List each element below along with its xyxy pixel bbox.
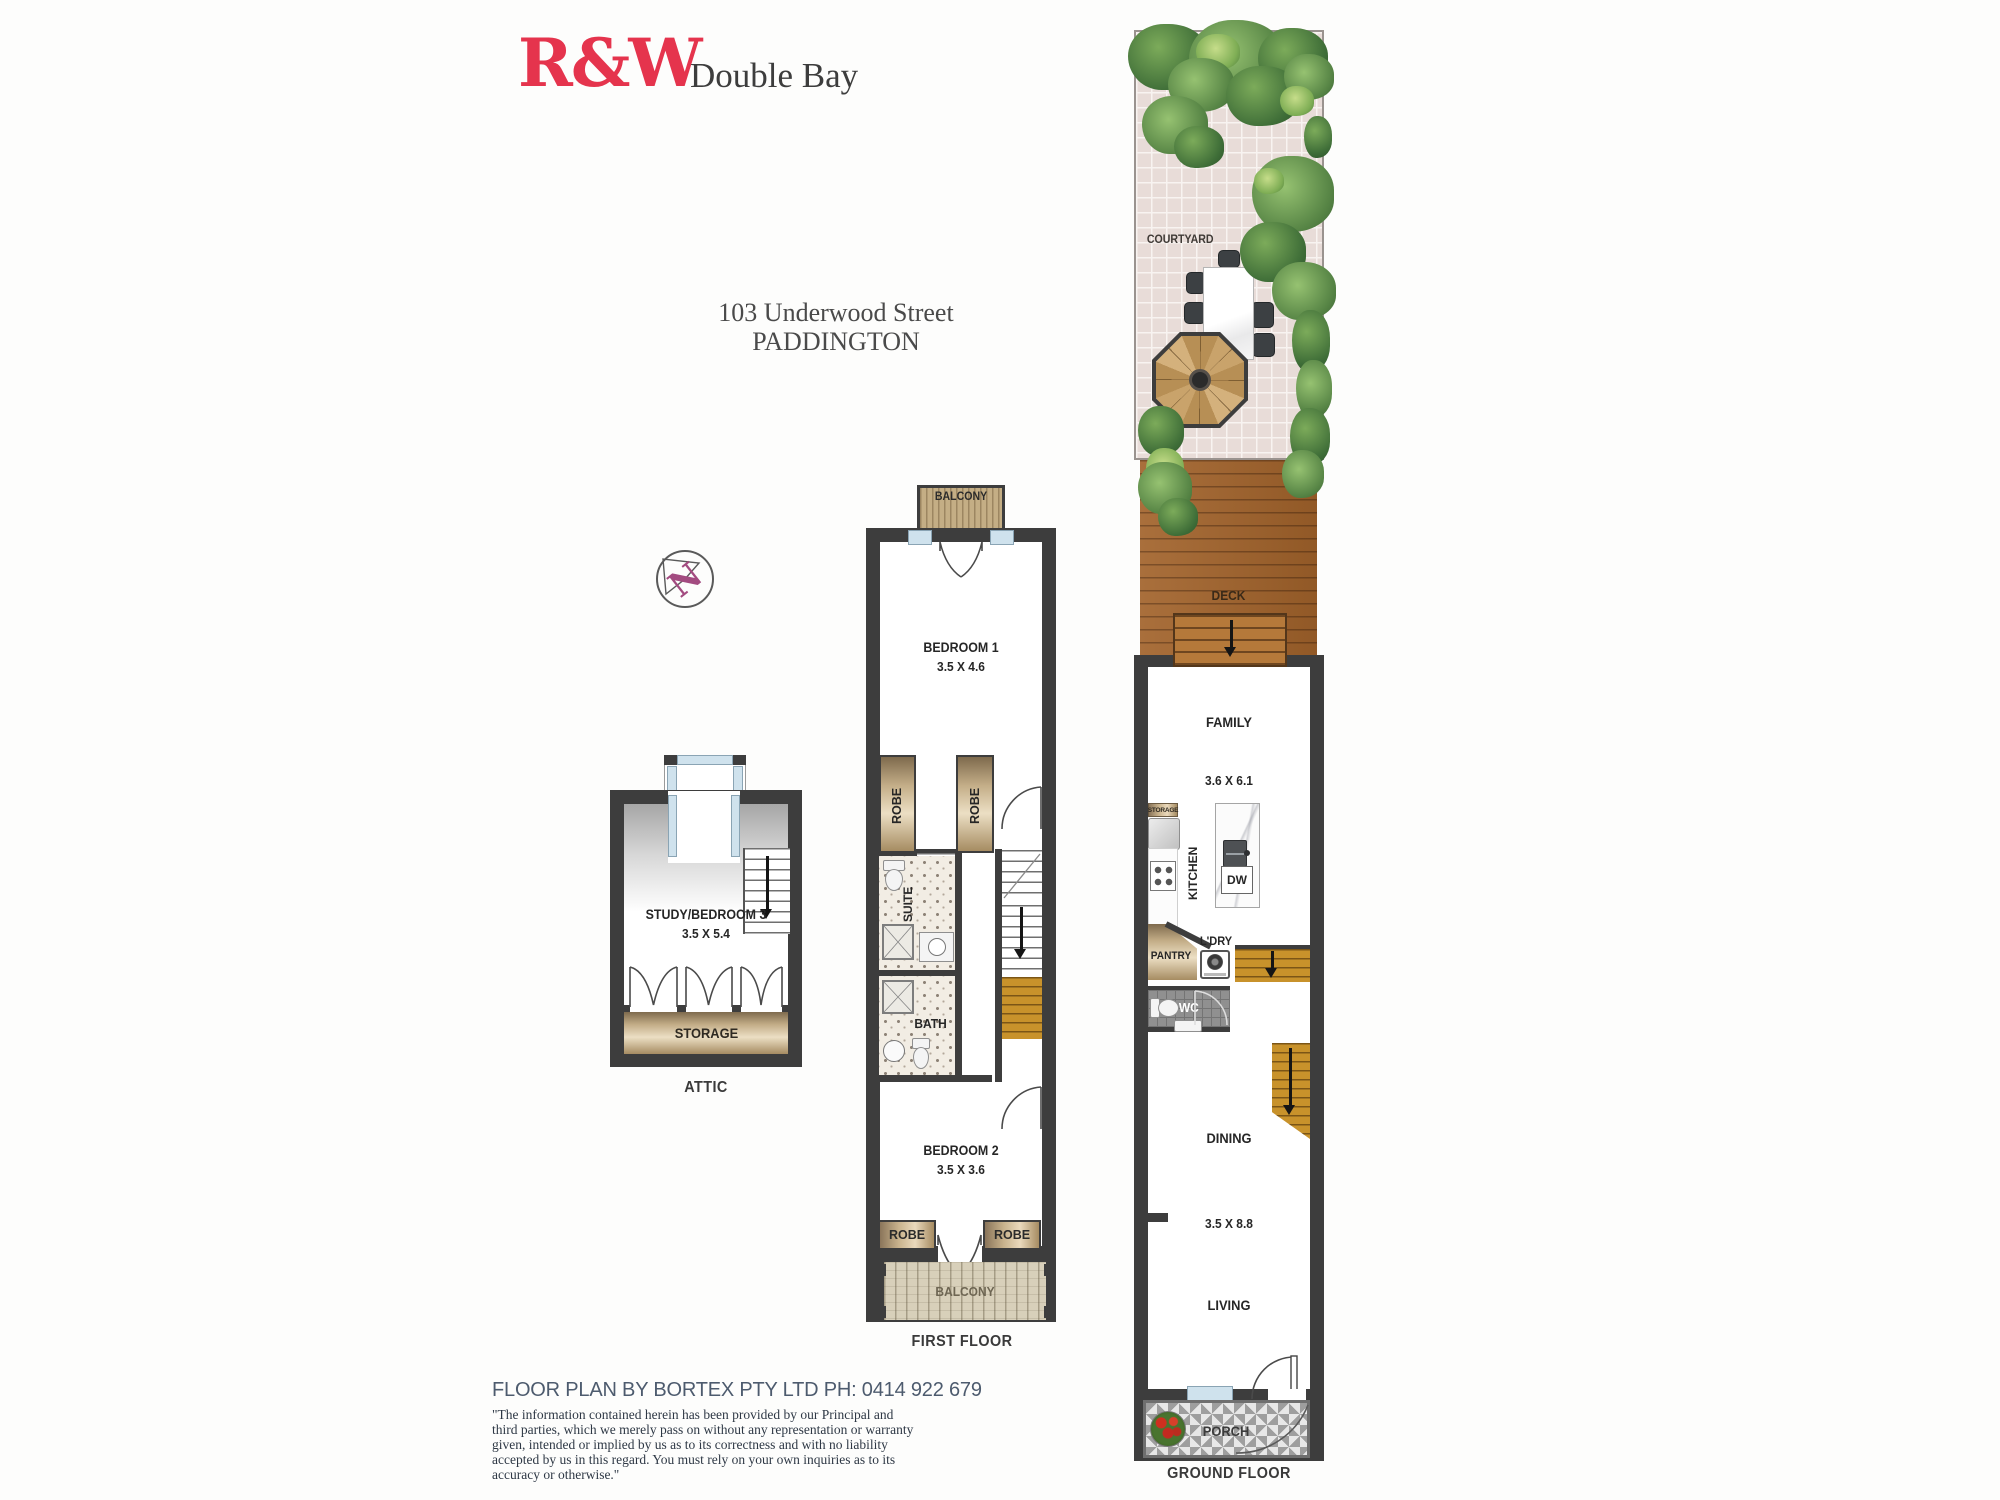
ground-floor-plan: COURTYARD DECK FAMILY 3.6 X 6.1 (1134, 28, 1334, 1490)
kitchen-storage: STORAGE (1148, 803, 1178, 817)
first-floor-label: FIRST FLOOR (876, 1333, 1049, 1351)
down-arrow-icon (1230, 620, 1233, 648)
robe-left: ROBE (879, 755, 916, 853)
storage-door-arcs (624, 955, 788, 1013)
umbrella-icon (1152, 332, 1248, 428)
down-arrow-icon (1020, 907, 1023, 949)
shower-icon (882, 980, 914, 1014)
robe2-right: ROBE (983, 1220, 1041, 1250)
living-dims: 3.5 X 8.8 (1154, 1216, 1303, 1231)
robe-label: ROBE (890, 763, 904, 849)
down-arrow-icon (1271, 951, 1274, 969)
room-dims: 3.5 X 3.6 (886, 1162, 1035, 1177)
staircase-wood (1002, 977, 1042, 1039)
footer-disclaimer: "The information contained herein has be… (492, 1407, 916, 1483)
staircase-down (1235, 945, 1310, 982)
washing-machine-icon (1200, 950, 1230, 979)
down-arrow-icon (766, 856, 769, 911)
chair-icon (1252, 333, 1275, 357)
compass-north-label: N (661, 555, 710, 606)
balcony-bottom-label: BALCONY (890, 1284, 1039, 1299)
brand-office: Double Bay (690, 58, 858, 93)
chair-icon (1218, 250, 1240, 268)
living-label: LIVING (1154, 1297, 1303, 1313)
storage-label: STORAGE (674, 1025, 737, 1041)
kitchen-sink-icon (1223, 840, 1247, 867)
staircase-down (1002, 905, 1042, 971)
toilet-icon (1158, 999, 1179, 1017)
room-name: STUDY/BEDROOM 3 (631, 907, 782, 922)
bedroom1-label: BEDROOM 1 3.5 X 4.6 (886, 640, 1035, 674)
fridge-icon (1148, 818, 1180, 850)
pantry-label: PANTRY (1151, 950, 1191, 962)
family-label: FAMILY (1154, 714, 1303, 730)
toilet-icon (913, 1047, 929, 1069)
down-arrow-icon (1289, 1048, 1292, 1106)
bedroom2-label: BEDROOM 2 3.5 X 3.6 (886, 1143, 1035, 1177)
wc-room: WC (1148, 986, 1230, 1032)
attic-floor-label: ATTIC (620, 1079, 793, 1097)
porch: PORCH (1143, 1400, 1310, 1458)
attic-plan: STUDY/BEDROOM 3 3.5 X 5.4 STORAGE ATTIC (610, 755, 802, 1107)
chair-icon (1184, 302, 1206, 324)
deck-steps (1173, 613, 1287, 667)
deck-label: DECK (1147, 588, 1310, 603)
dining-label: DINING (1154, 1130, 1303, 1146)
balcony-top: BALCONY (917, 485, 1005, 531)
robe-right: ROBE (956, 755, 994, 853)
dishwasher: DW (1221, 866, 1253, 894)
door-arc (1000, 1085, 1044, 1131)
bathroom: BATH (879, 976, 955, 1075)
window (1187, 1386, 1233, 1401)
attic-room-label: STUDY/BEDROOM 3 3.5 X 5.4 (631, 907, 782, 941)
property-address: 103 Underwood Street PADDINGTON (660, 298, 1012, 356)
flower-pot-icon (1150, 1411, 1186, 1447)
skylight-window (677, 755, 733, 765)
floorplan-page: R&W Double Bay 103 Underwood Street PADD… (0, 0, 2000, 1500)
dw-label: DW (1227, 873, 1247, 887)
vanity-sink-icon (919, 932, 954, 962)
first-floor-plan: BALCONY BEDROOM 1 3.5 X 4.6 ROBE ROBE (866, 485, 1058, 1363)
room-name: BEDROOM 1 (886, 640, 1035, 655)
balcony-top-label: BALCONY (923, 491, 998, 503)
door-arc (1192, 990, 1229, 1027)
ground-floor-label: GROUND FLOOR (1144, 1465, 1315, 1483)
balcony-bottom: BALCONY (884, 1262, 1046, 1320)
brand-logo: R&W (518, 30, 701, 96)
robe2-left: ROBE (878, 1220, 936, 1250)
porch-door-arc (1232, 1403, 1310, 1455)
laundry-label: L'DRY (1198, 934, 1235, 948)
brand-header: R&W Double Bay (518, 30, 938, 100)
shower-icon (882, 924, 914, 960)
ensuite-room: EN SUITE (879, 856, 955, 970)
attic-storage: STORAGE (624, 1012, 788, 1054)
balcony-door-arcs (938, 541, 984, 581)
window (908, 530, 932, 545)
room-name: BEDROOM 2 (886, 1143, 1035, 1158)
room-dims: 3.5 X 4.6 (886, 659, 1035, 674)
footer-credit: FLOOR PLAN BY BORTEX PTY LTD PH: 0414 92… (492, 1379, 982, 1402)
chair-icon (1251, 302, 1274, 328)
cooktop-icon (1150, 861, 1176, 891)
robe-label: ROBE (968, 763, 982, 849)
robe-label: ROBE (994, 1228, 1030, 1242)
kitchen-label: KITCHEN (1186, 836, 1200, 910)
storage-label: STORAGE (1148, 807, 1179, 814)
robe-label: ROBE (889, 1228, 925, 1242)
room-dims: 3.5 X 5.4 (631, 926, 782, 941)
compass-icon: N (652, 548, 718, 614)
window (990, 530, 1014, 545)
stair-landing (1002, 850, 1042, 900)
door-arc (1000, 785, 1044, 831)
bath-label: BATH (914, 1016, 946, 1031)
courtyard-label: COURTYARD (1147, 234, 1214, 246)
kitchen-island: DW (1215, 803, 1260, 908)
address-line2: PADDINGTON (660, 327, 1012, 356)
family-dims: 3.6 X 6.1 (1154, 773, 1303, 788)
address-line1: 103 Underwood Street (660, 298, 1012, 327)
basin-icon (883, 1040, 905, 1062)
